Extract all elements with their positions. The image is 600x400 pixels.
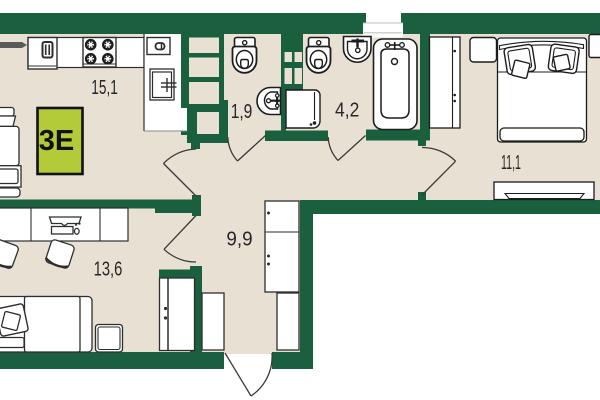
svg-text:15,1: 15,1: [91, 77, 118, 99]
svg-text:9,9: 9,9: [226, 228, 252, 250]
svg-text:11,1: 11,1: [501, 152, 521, 174]
svg-text:3Е: 3Е: [39, 125, 74, 157]
svg-text:4,2: 4,2: [335, 100, 359, 122]
svg-text:1,9: 1,9: [231, 101, 253, 123]
svg-text:13,6: 13,6: [94, 258, 123, 280]
